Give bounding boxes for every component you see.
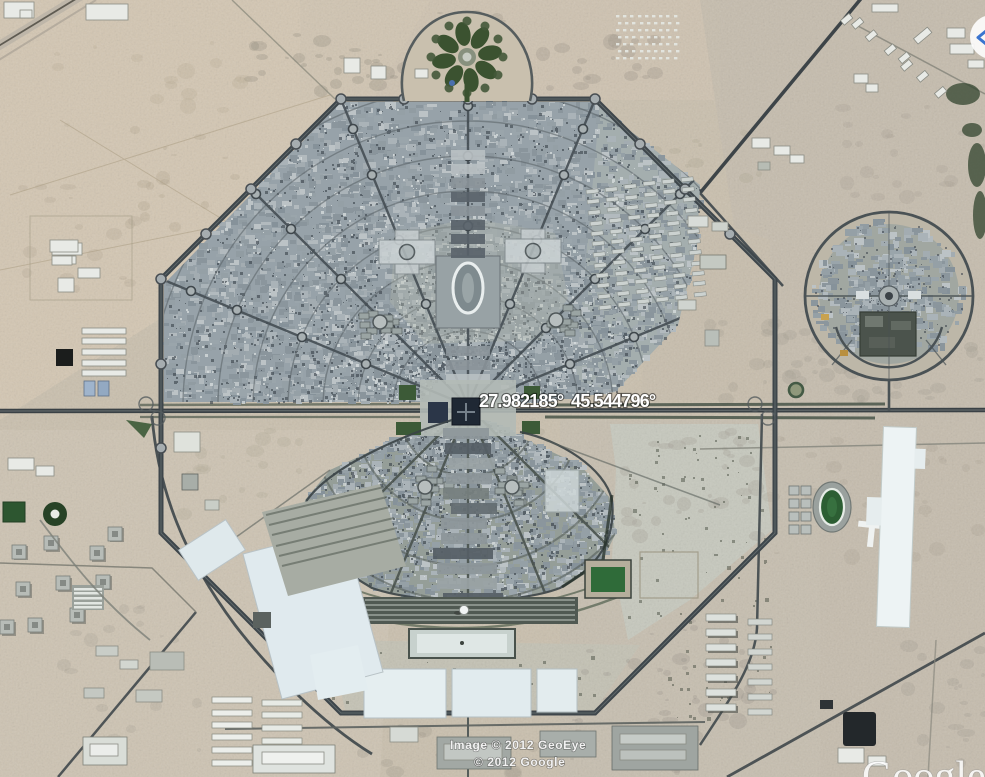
svg-text:Google: Google — [862, 754, 985, 777]
svg-text:27.982185°: 27.982185° — [479, 391, 564, 411]
svg-text:Image © 2012 GeoEye: Image © 2012 GeoEye — [450, 738, 586, 752]
svg-text:45.544796°: 45.544796° — [571, 391, 656, 411]
svg-text:© 2012 Google: © 2012 Google — [474, 755, 565, 769]
